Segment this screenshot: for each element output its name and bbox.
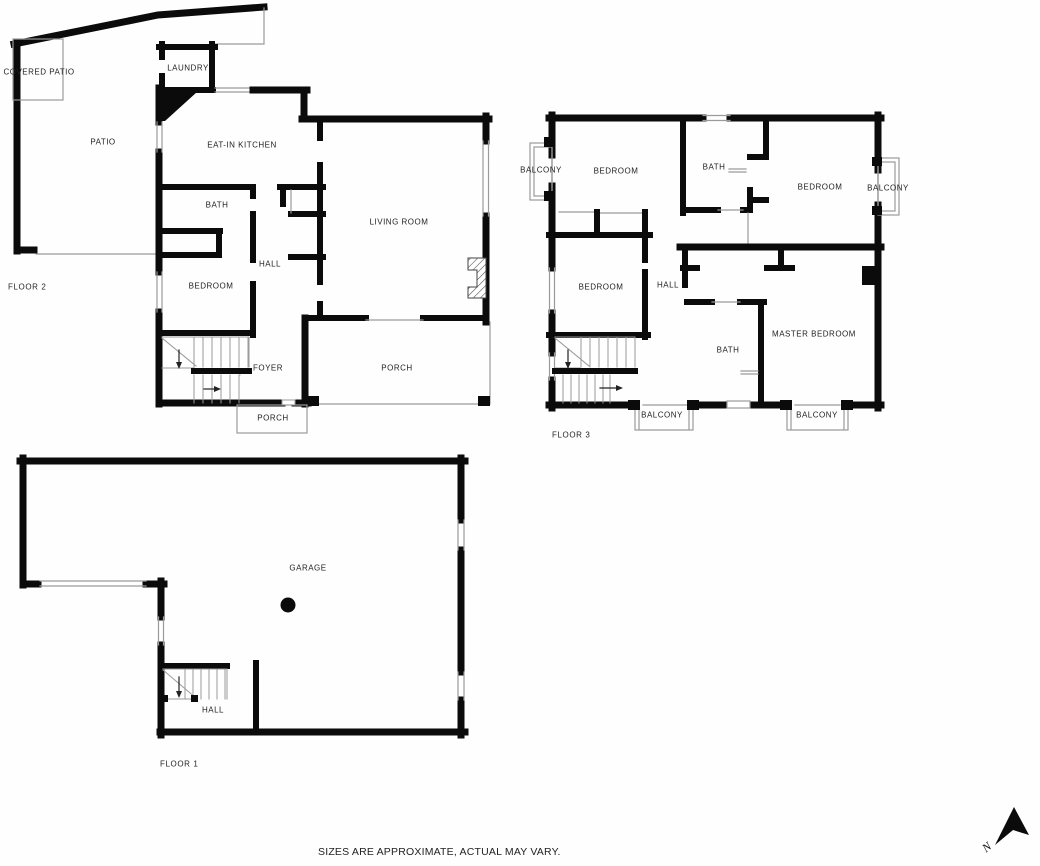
garage-column-dot	[281, 598, 296, 613]
room-label-laundry: LAUNDRY	[167, 64, 209, 73]
door-threshold	[282, 400, 295, 405]
floor-plan-drawing	[0, 0, 1040, 866]
north-arrow-icon	[995, 807, 1029, 845]
window	[483, 141, 489, 216]
floor-1-plan	[20, 458, 465, 735]
room-label-bath: BATH	[717, 346, 740, 355]
stair-post	[161, 695, 168, 702]
floor-label-floor-2: FLOOR 2	[8, 283, 46, 292]
window	[215, 88, 253, 92]
room-label-bedroom: BEDROOM	[594, 167, 639, 176]
room-label-bath: BATH	[703, 163, 726, 172]
fireplace-icon	[468, 258, 486, 298]
room-label-foyer: FOYER	[253, 364, 283, 373]
floor-label-floor-3: FLOOR 3	[552, 431, 590, 440]
room-label-eat-in-kitchen: EAT-IN KITCHEN	[207, 141, 277, 150]
floor-label-floor-1: FLOOR 1	[160, 760, 198, 769]
wall	[159, 121, 323, 335]
wall	[253, 90, 489, 322]
room-label-master-bedroom: MASTER BEDROOM	[772, 330, 856, 339]
room-label-hall: HALL	[202, 706, 224, 715]
floor-plan-page: COVERED PATIOPATIOLAUNDRYEAT-IN KITCHENB…	[0, 0, 1040, 866]
room-label-bedroom: BEDROOM	[579, 283, 624, 292]
disclaimer-text: SIZES ARE APPROXIMATE, ACTUAL MAY VARY.	[318, 846, 561, 858]
room-label-bedroom: BEDROOM	[798, 183, 843, 192]
room-label-hall: HALL	[259, 260, 281, 269]
closet-front	[559, 212, 643, 213]
patio-boundary	[13, 8, 264, 254]
room-label-covered-patio: COVERED PATIO	[3, 68, 74, 77]
room-label-balcony: BALCONY	[520, 166, 562, 175]
room-label-balcony: BALCONY	[641, 411, 683, 420]
room-label-balcony: BALCONY	[867, 184, 909, 193]
room-label-bedroom: BEDROOM	[189, 282, 234, 291]
room-label-patio: PATIO	[90, 138, 115, 147]
stair-post	[191, 695, 198, 702]
room-label-garage: GARAGE	[289, 564, 326, 573]
room-label-porch: PORCH	[257, 414, 288, 423]
wall	[549, 212, 650, 337]
door	[712, 302, 758, 374]
room-label-porch: PORCH	[381, 364, 412, 373]
window	[40, 520, 464, 700]
stairs-arrow	[176, 677, 182, 698]
room-label-hall: HALL	[657, 281, 679, 290]
chimney	[862, 266, 877, 285]
room-label-balcony: BALCONY	[796, 411, 838, 420]
wall	[20, 458, 465, 735]
wall	[683, 247, 792, 285]
room-label-bath: BATH	[206, 201, 229, 210]
room-label-living-room: LIVING ROOM	[370, 218, 429, 227]
porch-post	[478, 396, 490, 406]
stairs	[163, 669, 227, 699]
